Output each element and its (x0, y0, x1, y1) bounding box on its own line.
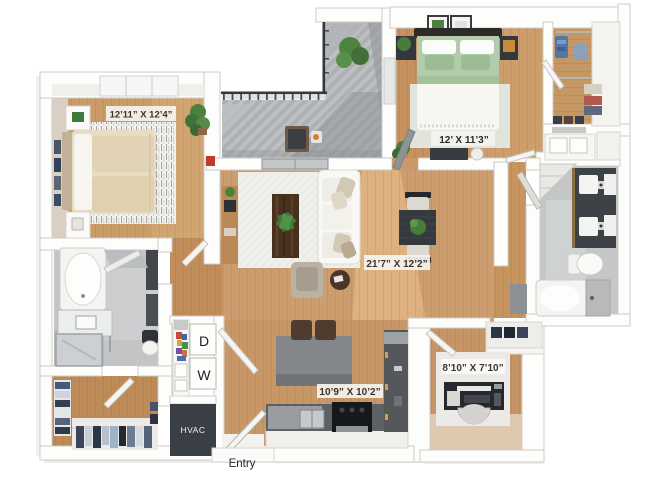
svg-text:HVAC: HVAC (181, 425, 206, 435)
svg-text:8’10” X 7’10”: 8’10” X 7’10” (442, 363, 503, 374)
svg-text:10’9” X 10’2”: 10’9” X 10’2” (319, 387, 380, 398)
svg-text:Entry: Entry (229, 458, 256, 470)
svg-text:12’ X 11’3”: 12’ X 11’3” (439, 135, 489, 146)
svg-text:D: D (199, 333, 209, 349)
svg-text:21’7” X 12’2”: 21’7” X 12’2” (366, 259, 427, 270)
svg-text:W: W (197, 367, 211, 383)
svg-text:12’11” X 12’4”: 12’11” X 12’4” (110, 110, 173, 121)
